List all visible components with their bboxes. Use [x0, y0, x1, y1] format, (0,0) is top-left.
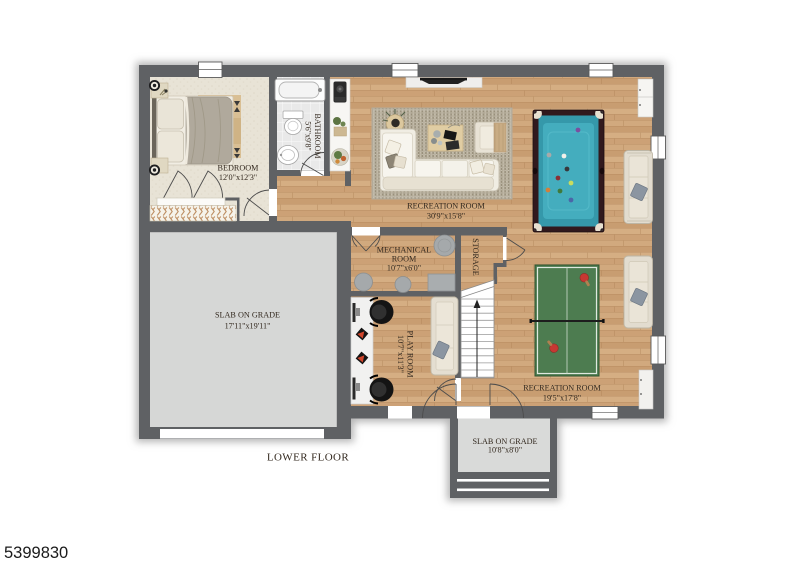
- svg-text:LOWER FLOOR: LOWER FLOOR: [267, 452, 350, 464]
- svg-text:BEDROOM: BEDROOM: [218, 164, 260, 173]
- svg-text:RECREATION ROOM: RECREATION ROOM: [407, 202, 485, 211]
- svg-text:10'7"x6'0": 10'7"x6'0": [387, 264, 421, 273]
- svg-text:STORAGE: STORAGE: [471, 238, 480, 276]
- svg-text:5399830: 5399830: [4, 544, 68, 562]
- svg-text:19'5"x17'8": 19'5"x17'8": [543, 394, 581, 403]
- svg-text:PLAY ROOM: PLAY ROOM: [406, 331, 415, 379]
- svg-text:ROOM: ROOM: [392, 255, 417, 264]
- svg-text:12'0"x12'3": 12'0"x12'3": [219, 173, 257, 182]
- svg-text:SLAB ON GRADE: SLAB ON GRADE: [215, 311, 280, 320]
- svg-text:5'6"x9'8": 5'6"x9'8": [304, 121, 313, 150]
- svg-text:10'7"x11'3": 10'7"x11'3": [396, 335, 405, 373]
- svg-text:10'8"x8'0": 10'8"x8'0": [488, 446, 522, 455]
- svg-text:BATHROOM: BATHROOM: [313, 114, 322, 159]
- svg-text:MECHANICAL: MECHANICAL: [377, 246, 432, 255]
- svg-text:30'9"x15'8": 30'9"x15'8": [427, 212, 465, 221]
- svg-text:17'11"x19'11": 17'11"x19'11": [225, 322, 271, 331]
- svg-text:RECREATION ROOM: RECREATION ROOM: [523, 384, 601, 393]
